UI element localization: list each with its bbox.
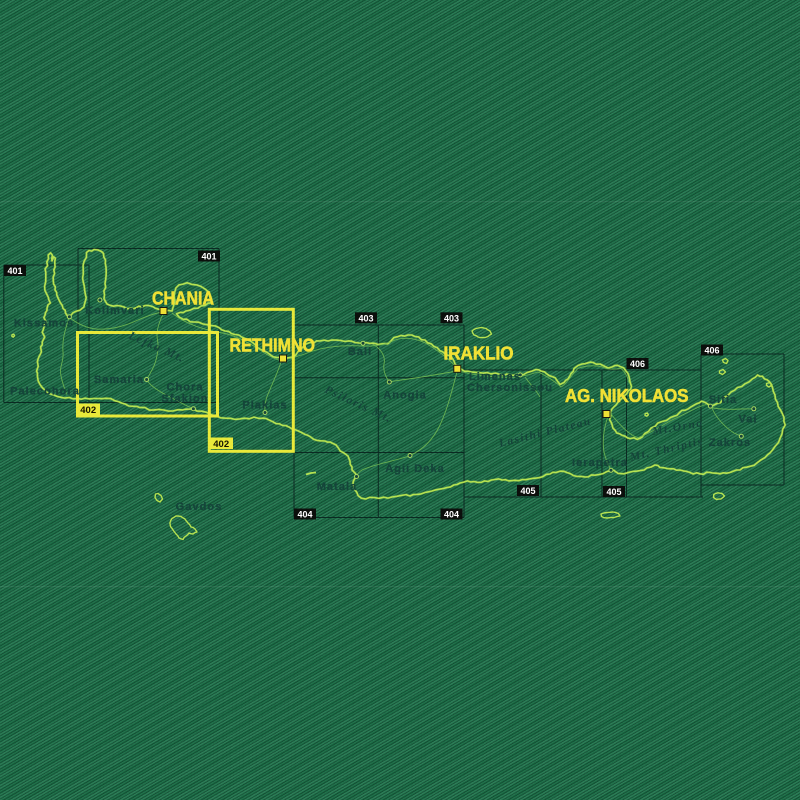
svg-text:Agii Deka: Agii Deka — [385, 463, 445, 475]
svg-text:RETHIMNO: RETHIMNO — [230, 335, 316, 356]
svg-text:Matala: Matala — [317, 481, 358, 493]
svg-text:404: 404 — [297, 510, 312, 520]
svg-text:406: 406 — [630, 359, 645, 369]
svg-text:Kolimvari: Kolimvari — [85, 305, 145, 317]
svg-text:Plakias: Plakias — [242, 400, 287, 412]
svg-text:Kissamos: Kissamos — [14, 318, 74, 330]
svg-text:Vai: Vai — [738, 414, 757, 426]
svg-text:403: 403 — [358, 313, 373, 323]
svg-text:IRAKLIO: IRAKLIO — [444, 343, 514, 364]
svg-text:401: 401 — [7, 266, 22, 276]
svg-text:Ierapetra: Ierapetra — [572, 457, 628, 469]
svg-text:Chora: Chora — [166, 382, 203, 394]
svg-text:Gavdos: Gavdos — [176, 501, 223, 513]
svg-text:Lasithi Plateau: Lasithi Plateau — [497, 415, 593, 450]
svg-text:Sitia: Sitia — [709, 394, 737, 406]
svg-text:405: 405 — [520, 486, 535, 496]
svg-text:AG. NIKOLAOS: AG. NIKOLAOS — [565, 385, 689, 406]
svg-text:403: 403 — [444, 313, 459, 323]
svg-text:Chersonissou: Chersonissou — [467, 382, 553, 394]
svg-text:Samaria: Samaria — [94, 374, 144, 386]
svg-text:Sfakion: Sfakion — [161, 393, 208, 405]
svg-text:Palecohora: Palecohora — [10, 386, 80, 398]
svg-text:402: 402 — [80, 405, 96, 416]
svg-text:CHANIA: CHANIA — [152, 288, 214, 309]
svg-text:Zakros: Zakros — [709, 437, 751, 449]
svg-text:404: 404 — [444, 510, 459, 520]
svg-text:402: 402 — [213, 439, 229, 450]
svg-text:401: 401 — [201, 252, 216, 262]
svg-text:Bali: Bali — [348, 346, 372, 358]
svg-text:Anogia: Anogia — [383, 390, 427, 402]
svg-text:406: 406 — [704, 346, 719, 356]
svg-text:Mt.Orno: Mt.Orno — [650, 417, 704, 438]
svg-text:405: 405 — [606, 487, 621, 497]
